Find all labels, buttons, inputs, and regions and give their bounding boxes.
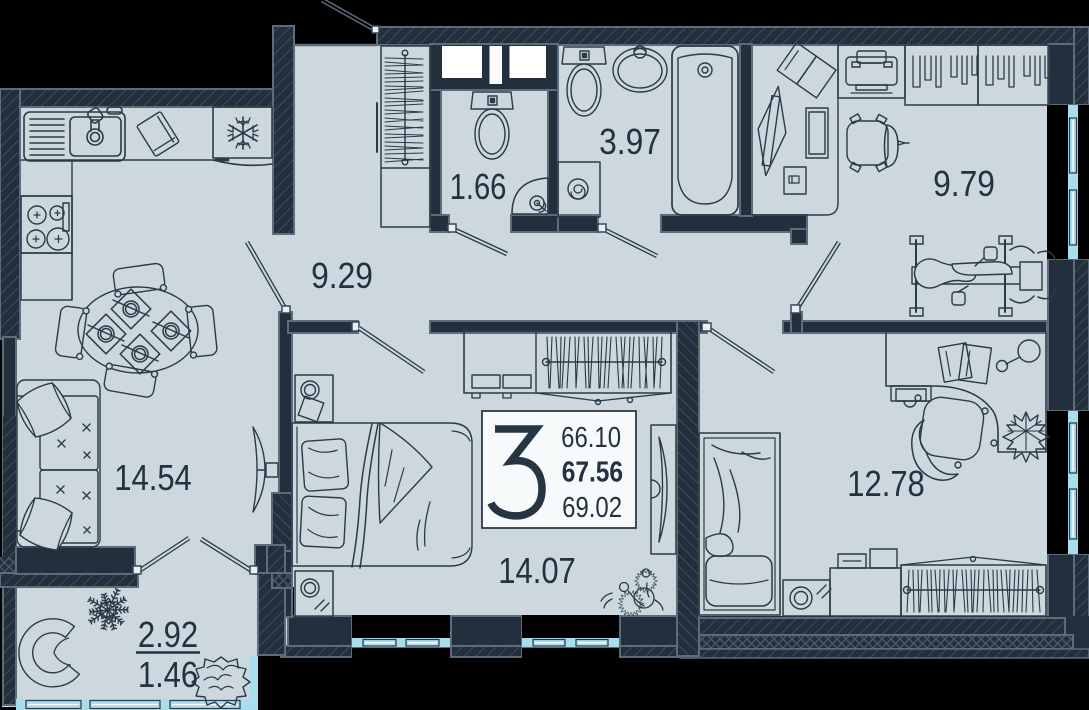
svg-text:14.07: 14.07 [498, 551, 576, 592]
svg-text:1.66: 1.66 [450, 167, 507, 208]
svg-text:66.10: 66.10 [561, 421, 621, 453]
svg-text:14.54: 14.54 [114, 458, 192, 499]
svg-text:69.02: 69.02 [562, 491, 622, 523]
svg-text:9.79: 9.79 [933, 164, 995, 205]
svg-text:67.56: 67.56 [562, 456, 623, 488]
svg-text:2.92: 2.92 [138, 615, 198, 656]
svg-text:3.97: 3.97 [599, 122, 661, 163]
svg-text:1.46: 1.46 [138, 655, 198, 696]
svg-text:9.29: 9.29 [311, 256, 373, 297]
svg-text:12.78: 12.78 [847, 464, 925, 505]
